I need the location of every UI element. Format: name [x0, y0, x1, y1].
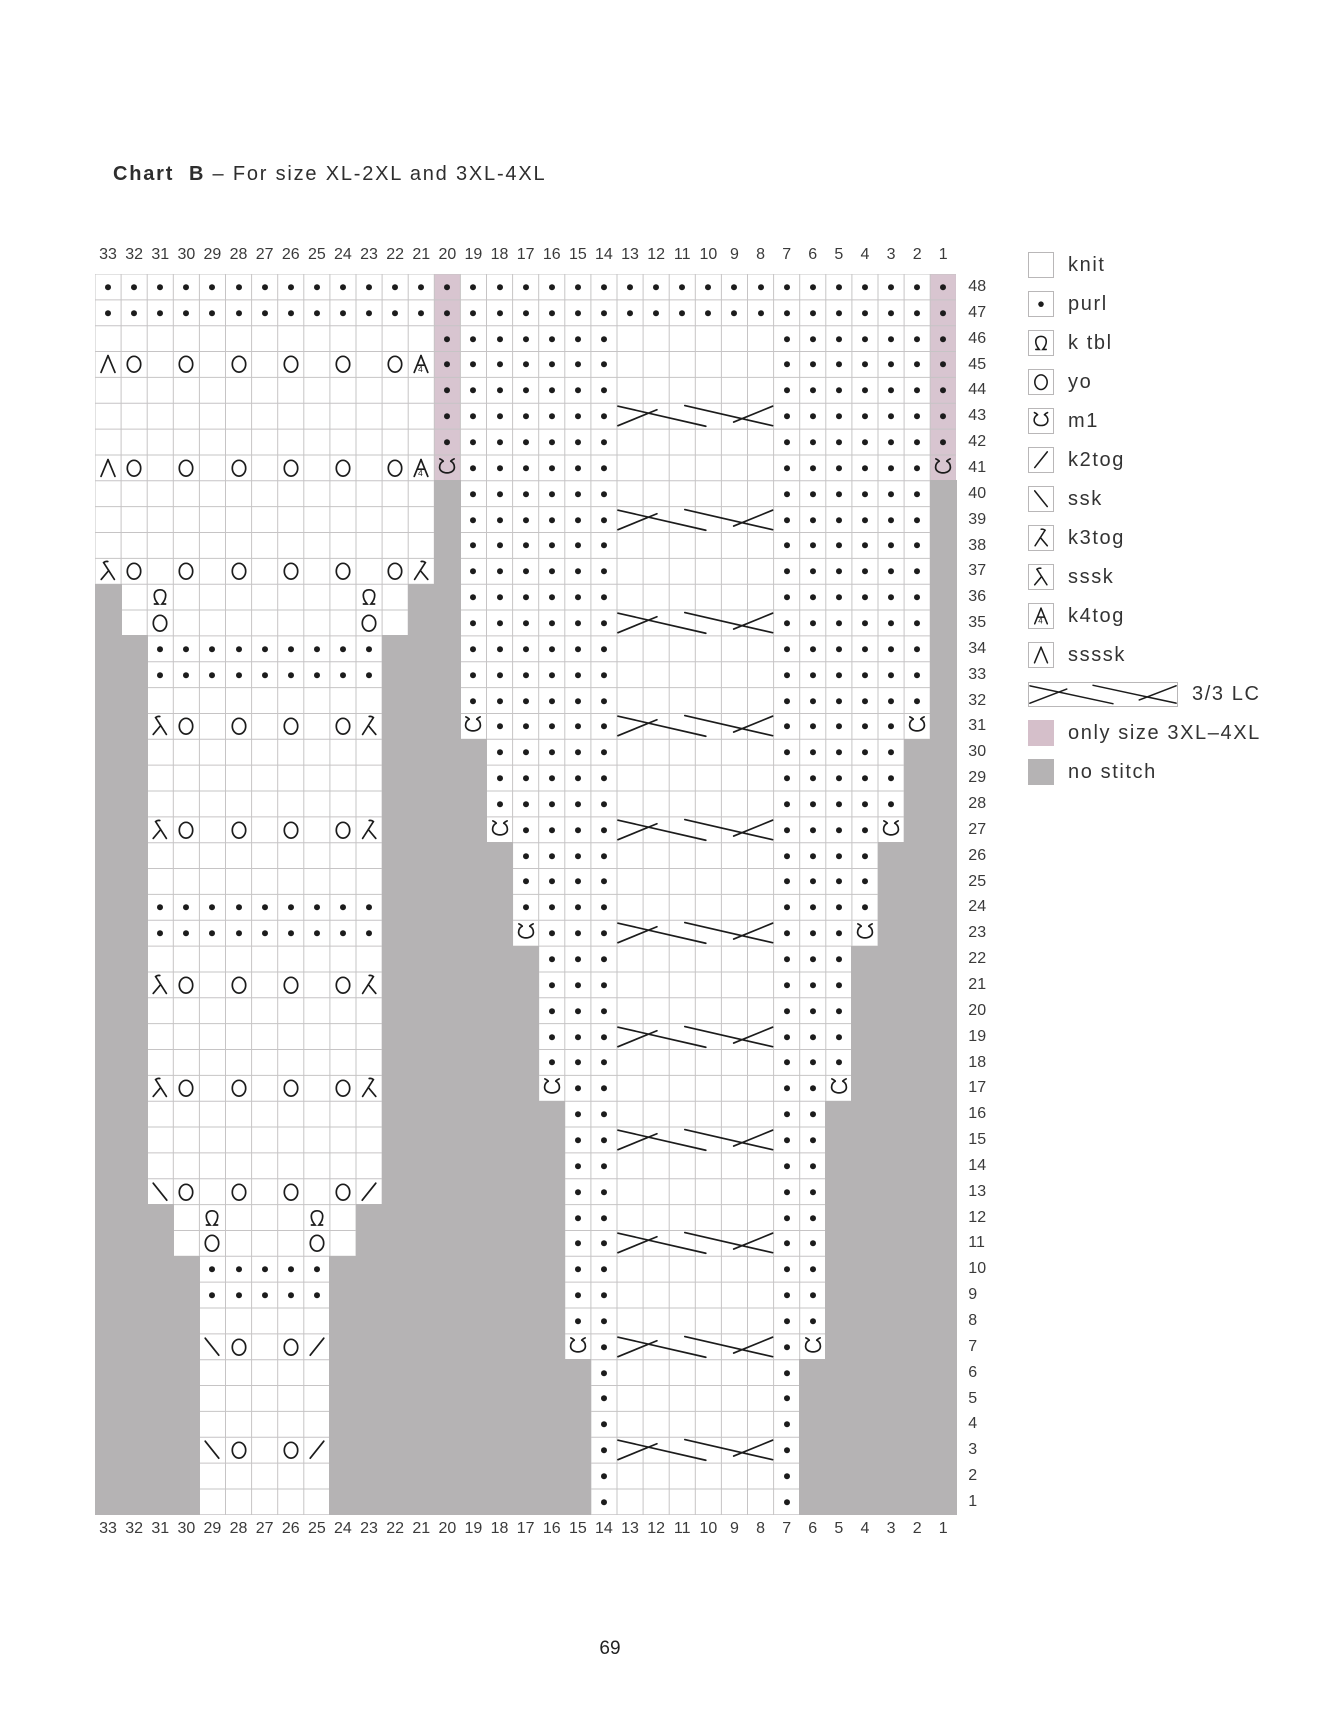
- no-stitch-area: [904, 791, 957, 818]
- row-label: 24: [968, 898, 998, 924]
- row-label: 30: [968, 743, 998, 769]
- no-stitch-area: [95, 997, 148, 1024]
- no-stitch-area: [382, 1101, 566, 1128]
- book-page: Chart B – For size XL-2XL and 3XL-4XL 44…: [0, 0, 1339, 1732]
- svg-text:4: 4: [1038, 616, 1043, 625]
- k4tog-icon: 4: [1028, 603, 1054, 629]
- row-label: 26: [968, 847, 998, 873]
- column-label-bottom: 31: [147, 1520, 173, 1540]
- row-label: 8: [968, 1312, 998, 1338]
- no-stitch-area: [799, 1488, 957, 1515]
- legend-label-cable: 3/3 LC: [1192, 683, 1261, 706]
- legend-item-purl: purl: [1028, 291, 1261, 317]
- chart-title: Chart B – For size XL-2XL and 3XL-4XL: [113, 163, 546, 186]
- no-stitch-area: [930, 532, 957, 559]
- column-label-bottom: 7: [774, 1520, 800, 1540]
- row-label: 32: [968, 692, 998, 718]
- no-stitch-area: [95, 1230, 174, 1257]
- row-label: 13: [968, 1183, 998, 1209]
- row-label: 7: [968, 1338, 998, 1364]
- no-stitch-area: [382, 1152, 566, 1179]
- row-label: 41: [968, 459, 998, 485]
- no-stitch-area: [904, 765, 957, 792]
- row-label: 37: [968, 562, 998, 588]
- legend-label-only3xl: only size 3XL–4XL: [1068, 722, 1261, 745]
- no-stitch-area: [382, 842, 514, 869]
- row-label: 38: [968, 537, 998, 563]
- column-label-bottom: 1: [930, 1520, 956, 1540]
- column-label-top: 21: [408, 246, 434, 266]
- no-stitch-area: [930, 635, 957, 662]
- row-label: 3: [968, 1441, 998, 1467]
- page-number: 69: [560, 1638, 660, 1660]
- no-stitch-area: [329, 1411, 591, 1438]
- no-stitch-area: [851, 946, 956, 973]
- column-label-bottom: 18: [487, 1520, 513, 1540]
- column-label-bottom: 4: [852, 1520, 878, 1540]
- row-label: 33: [968, 666, 998, 692]
- column-label-bottom: 9: [721, 1520, 747, 1540]
- k2tog-icon: [1029, 448, 1053, 472]
- row-label: 36: [968, 588, 998, 614]
- column-label-bottom: 6: [800, 1520, 826, 1540]
- no-stitch-area: [382, 635, 461, 662]
- column-label-bottom: 25: [304, 1520, 330, 1540]
- legend-label-knit: knit: [1068, 254, 1106, 277]
- no-stitch-area: [95, 791, 148, 818]
- legend-label-ssssk: ssssk: [1068, 644, 1126, 667]
- no-stitch-area: [95, 1359, 200, 1386]
- chart-legend: knitpurlk tblyom1k2togsskk3togsssk4k4tog…: [1028, 252, 1261, 798]
- no-stitch-area: [382, 920, 514, 947]
- no-stitch-area: [329, 1256, 565, 1283]
- column-label-bottom: 14: [591, 1520, 617, 1540]
- column-label-top: 32: [121, 246, 147, 266]
- no-stitch-area: [95, 584, 122, 611]
- no-stitch-area: [95, 1178, 148, 1205]
- legend-item-k4tog: 4k4tog: [1028, 603, 1261, 629]
- no-stitch-area: [825, 1230, 957, 1257]
- column-label-top: 17: [513, 246, 539, 266]
- cable-3-3-lc-icon: [1028, 682, 1178, 707]
- no-stitch-area: [825, 1204, 957, 1231]
- column-label-bottom: 22: [382, 1520, 408, 1540]
- k-tbl-icon: [1029, 331, 1053, 355]
- k3tog-icon: [1029, 526, 1053, 550]
- cable-3-3-lc-icon: [1029, 683, 1177, 706]
- no-stitch-area: [95, 1101, 148, 1128]
- column-label-top: 10: [695, 246, 721, 266]
- no-stitch-area: [825, 1333, 957, 1360]
- no-stitch-area: [878, 842, 957, 869]
- no-stitch-area: [904, 816, 957, 843]
- no-stitch-area: [95, 1333, 200, 1360]
- column-label-top: 8: [748, 246, 774, 266]
- no-stitch-area: [825, 1178, 957, 1205]
- column-label-top: 4: [852, 246, 878, 266]
- no-stitch-area: [382, 1178, 566, 1205]
- column-label-top: 5: [826, 246, 852, 266]
- no-stitch-area: [825, 1152, 957, 1179]
- no-stitch-area: [825, 1282, 957, 1309]
- no-stitch-area: [95, 868, 148, 895]
- column-label-bottom: 13: [617, 1520, 643, 1540]
- column-label-top: 1: [930, 246, 956, 266]
- no-stitch-area: [930, 584, 957, 611]
- legend-label-m1: m1: [1068, 410, 1099, 433]
- purl-icon: [1029, 292, 1053, 316]
- no-stitch-area: [851, 971, 956, 998]
- no-stitch-area: [95, 610, 122, 637]
- row-label: 14: [968, 1157, 998, 1183]
- no-stitch-area: [434, 506, 461, 533]
- column-label-top: 11: [669, 246, 695, 266]
- column-label-bottom: 11: [669, 1520, 695, 1540]
- legend-item-yo: yo: [1028, 369, 1261, 395]
- column-label-top: 33: [95, 246, 121, 266]
- column-label-bottom: 12: [643, 1520, 669, 1540]
- row-label: 16: [968, 1105, 998, 1131]
- column-label-top: 23: [356, 246, 382, 266]
- knitting-chart-grid: 44: [95, 274, 956, 1515]
- no-stitch-area: [382, 713, 461, 740]
- no-stitch-area: [382, 816, 487, 843]
- row-label: 48: [968, 278, 998, 304]
- column-label-top: 15: [565, 246, 591, 266]
- column-label-bottom: 29: [199, 1520, 225, 1540]
- column-label-top: 6: [800, 246, 826, 266]
- no-stitch-area: [434, 558, 461, 585]
- row-label: 31: [968, 717, 998, 743]
- row-label: 43: [968, 407, 998, 433]
- no-stitch-area: [851, 1075, 956, 1102]
- row-label: 19: [968, 1028, 998, 1054]
- no-stitch-area: [799, 1359, 957, 1386]
- no-stitch-area: [825, 1127, 957, 1154]
- no-stitch-area: [95, 816, 148, 843]
- legend-label-purl: purl: [1068, 293, 1108, 316]
- legend-item-sssk: sssk: [1028, 564, 1261, 590]
- no-stitch-area: [95, 1488, 200, 1515]
- purl-icon: [1028, 291, 1054, 317]
- column-label-top: 12: [643, 246, 669, 266]
- legend-label-k2tog: k2tog: [1068, 449, 1125, 472]
- k-tbl-icon: [1028, 330, 1054, 356]
- k3tog-icon: [1028, 525, 1054, 551]
- row-label: 29: [968, 769, 998, 795]
- sssk-icon: [1029, 565, 1053, 589]
- column-label-top: 26: [278, 246, 304, 266]
- no-stitch-area: [95, 920, 148, 947]
- column-label-top: 7: [774, 246, 800, 266]
- knit-icon: [1028, 252, 1054, 278]
- row-label: 39: [968, 511, 998, 537]
- column-label-bottom: 10: [695, 1520, 721, 1540]
- legend-label-sssk: sssk: [1068, 566, 1114, 589]
- row-label: 21: [968, 976, 998, 1002]
- column-label-bottom: 2: [904, 1520, 930, 1540]
- row-label: 34: [968, 640, 998, 666]
- column-label-top: 2: [904, 246, 930, 266]
- column-label-bottom: 20: [434, 1520, 460, 1540]
- no-stitch-area: [329, 1308, 565, 1335]
- legend-item-k3tog: k3tog: [1028, 525, 1261, 551]
- no-stitch-area: [356, 1204, 566, 1231]
- no-stitch-area: [382, 687, 461, 714]
- no-stitch-area: [878, 868, 957, 895]
- legend-label-k4tog: k4tog: [1068, 605, 1125, 628]
- no-stitch-area: [95, 687, 148, 714]
- ssssk-icon: [1029, 643, 1053, 667]
- no-stitch-area: [382, 946, 540, 973]
- legend-label-nostitch: no stitch: [1068, 761, 1157, 784]
- legend-label-ssk: ssk: [1068, 488, 1103, 511]
- no-stitch-area: [930, 480, 957, 507]
- no-stitch-area: [382, 1127, 566, 1154]
- no-stitch-area: [930, 687, 957, 714]
- no-stitch-area: [95, 1075, 148, 1102]
- row-label: 12: [968, 1209, 998, 1235]
- no-stitch-area: [95, 1308, 200, 1335]
- no-stitch-area: [382, 791, 487, 818]
- no-stitch-area: [95, 971, 148, 998]
- column-label-top: 16: [539, 246, 565, 266]
- k2tog-icon: [1028, 447, 1054, 473]
- no-stitch-area: [382, 971, 540, 998]
- no-stitch-area: [382, 997, 540, 1024]
- row-label: 10: [968, 1260, 998, 1286]
- yo-icon: [1028, 369, 1054, 395]
- column-label-top: 29: [199, 246, 225, 266]
- column-label-top: 13: [617, 246, 643, 266]
- no-stitch-area: [799, 1411, 957, 1438]
- column-label-top: 30: [173, 246, 199, 266]
- legend-item-ssk: ssk: [1028, 486, 1261, 512]
- no-stitch-area: [408, 584, 461, 611]
- no-stitch-area: [95, 765, 148, 792]
- column-label-bottom: 16: [539, 1520, 565, 1540]
- row-label: 22: [968, 950, 998, 976]
- no-stitch-area: [434, 532, 461, 559]
- ssssk-icon: [1028, 642, 1054, 668]
- column-label-top: 28: [226, 246, 252, 266]
- no-stitch-area: [878, 894, 957, 921]
- no-stitch-area: [95, 1282, 200, 1309]
- row-label: 25: [968, 873, 998, 899]
- no-stitch-area: [825, 1256, 957, 1283]
- no-stitch-area: [851, 1049, 956, 1076]
- no-stitch-area: [408, 610, 461, 637]
- row-label: 46: [968, 330, 998, 356]
- column-label-top: 22: [382, 246, 408, 266]
- row-label: 11: [968, 1234, 998, 1260]
- no-stitch-area: [95, 1385, 200, 1412]
- legend-label-yo: yo: [1068, 371, 1092, 394]
- row-label: 27: [968, 821, 998, 847]
- row-label: 18: [968, 1054, 998, 1080]
- column-label-top: 9: [721, 246, 747, 266]
- column-label-bottom: 5: [826, 1520, 852, 1540]
- no-stitch-area: [851, 997, 956, 1024]
- row-label: 47: [968, 304, 998, 330]
- no-stitch-area: [382, 1023, 540, 1050]
- no-stitch-area: [930, 506, 957, 533]
- no-stitch-area: [382, 894, 514, 921]
- no-stitch-area: [382, 868, 514, 895]
- no-stitch-area: [799, 1385, 957, 1412]
- no-stitch-area: [329, 1437, 591, 1464]
- column-label-top: 27: [252, 246, 278, 266]
- no-stitch-area: [95, 1463, 200, 1490]
- no-stitch-area: [329, 1333, 565, 1360]
- no-stitch-swatch-icon: [1028, 759, 1054, 785]
- no-stitch-area: [930, 610, 957, 637]
- chart-title-sizes: – For size XL-2XL and 3XL-4XL: [205, 163, 546, 185]
- no-stitch-area: [95, 1023, 148, 1050]
- column-label-top: 20: [434, 246, 460, 266]
- no-stitch-area: [382, 765, 487, 792]
- column-label-top: 19: [460, 246, 486, 266]
- no-stitch-area: [904, 739, 957, 766]
- column-label-top: 3: [878, 246, 904, 266]
- column-label-bottom: 24: [330, 1520, 356, 1540]
- row-label: 20: [968, 1002, 998, 1028]
- no-stitch-area: [329, 1282, 565, 1309]
- no-stitch-area: [329, 1463, 591, 1490]
- column-label-bottom: 32: [121, 1520, 147, 1540]
- legend-item-only3xl: only size 3XL–4XL: [1028, 720, 1261, 746]
- row-label: 5: [968, 1390, 998, 1416]
- column-label-bottom: 19: [460, 1520, 486, 1540]
- row-label: 6: [968, 1364, 998, 1390]
- no-stitch-area: [434, 480, 461, 507]
- no-stitch-area: [851, 1023, 956, 1050]
- column-label-bottom: 26: [278, 1520, 304, 1540]
- no-stitch-area: [382, 1049, 540, 1076]
- no-stitch-area: [382, 1075, 540, 1102]
- no-stitch-area: [930, 558, 957, 585]
- column-label-bottom: 30: [173, 1520, 199, 1540]
- no-stitch-area: [825, 1101, 957, 1128]
- legend-item-ssssk: ssssk: [1028, 642, 1261, 668]
- ssk-icon: [1028, 486, 1054, 512]
- row-label: 15: [968, 1131, 998, 1157]
- sssk-icon: [1028, 564, 1054, 590]
- row-label: 1: [968, 1493, 998, 1519]
- no-stitch-area: [95, 739, 148, 766]
- legend-item-cable: 3/3 LC: [1028, 681, 1261, 707]
- no-stitch-area: [95, 1411, 200, 1438]
- row-label: 28: [968, 795, 998, 821]
- ssk-icon: [1029, 487, 1053, 511]
- legend-item-knit: knit: [1028, 252, 1261, 278]
- no-stitch-area: [95, 661, 148, 688]
- column-label-bottom: 8: [748, 1520, 774, 1540]
- column-label-bottom: 27: [252, 1520, 278, 1540]
- no-stitch-area: [930, 713, 957, 740]
- no-stitch-area: [95, 1437, 200, 1464]
- no-stitch-area: [95, 1152, 148, 1179]
- no-stitch-area: [356, 1230, 566, 1257]
- no-stitch-area: [95, 713, 148, 740]
- no-stitch-area: [95, 1127, 148, 1154]
- no-stitch-area: [799, 1463, 957, 1490]
- no-stitch-area: [799, 1437, 957, 1464]
- column-label-bottom: 17: [513, 1520, 539, 1540]
- no-stitch-area: [95, 1049, 148, 1076]
- no-stitch-area: [825, 1308, 957, 1335]
- chart-title-name: Chart B: [113, 163, 205, 185]
- row-label: 9: [968, 1286, 998, 1312]
- m1-icon: [1028, 408, 1054, 434]
- column-label-bottom: 3: [878, 1520, 904, 1540]
- column-label-top: 24: [330, 246, 356, 266]
- row-label: 35: [968, 614, 998, 640]
- column-label-top: 14: [591, 246, 617, 266]
- column-label-bottom: 21: [408, 1520, 434, 1540]
- no-stitch-area: [382, 661, 461, 688]
- column-label-bottom: 23: [356, 1520, 382, 1540]
- column-label-top: 18: [487, 246, 513, 266]
- m1-icon: [1029, 409, 1053, 433]
- column-label-bottom: 28: [226, 1520, 252, 1540]
- yo-icon: [1029, 370, 1053, 394]
- no-stitch-area: [95, 1204, 174, 1231]
- no-stitch-area: [329, 1359, 591, 1386]
- row-label: 23: [968, 924, 998, 950]
- no-stitch-area: [95, 842, 148, 869]
- row-label: 44: [968, 381, 998, 407]
- row-label: 45: [968, 356, 998, 382]
- column-label-bottom: 33: [95, 1520, 121, 1540]
- no-stitch-area: [329, 1488, 591, 1515]
- no-stitch-area: [95, 635, 148, 662]
- row-label: 2: [968, 1467, 998, 1493]
- no-stitch-area: [382, 739, 487, 766]
- legend-item-k2tog: k2tog: [1028, 447, 1261, 473]
- legend-item-nostitch: no stitch: [1028, 759, 1261, 785]
- no-stitch-area: [95, 946, 148, 973]
- no-stitch-area: [329, 1385, 591, 1412]
- only-3xl-4xl-swatch-icon: [1028, 720, 1054, 746]
- no-stitch-area: [95, 1256, 200, 1283]
- column-label-bottom: 15: [565, 1520, 591, 1540]
- column-label-top: 25: [304, 246, 330, 266]
- no-stitch-area: [878, 920, 957, 947]
- legend-label-ktbl: k tbl: [1068, 332, 1113, 355]
- no-stitch-area: [95, 894, 148, 921]
- row-label: 40: [968, 485, 998, 511]
- column-label-top: 31: [147, 246, 173, 266]
- k4tog-icon: 4: [1029, 604, 1053, 628]
- legend-item-ktbl: k tbl: [1028, 330, 1261, 356]
- legend-label-k3tog: k3tog: [1068, 527, 1125, 550]
- legend-item-m1: m1: [1028, 408, 1261, 434]
- no-stitch-area: [930, 661, 957, 688]
- row-label: 42: [968, 433, 998, 459]
- row-label: 17: [968, 1079, 998, 1105]
- row-label: 4: [968, 1415, 998, 1441]
